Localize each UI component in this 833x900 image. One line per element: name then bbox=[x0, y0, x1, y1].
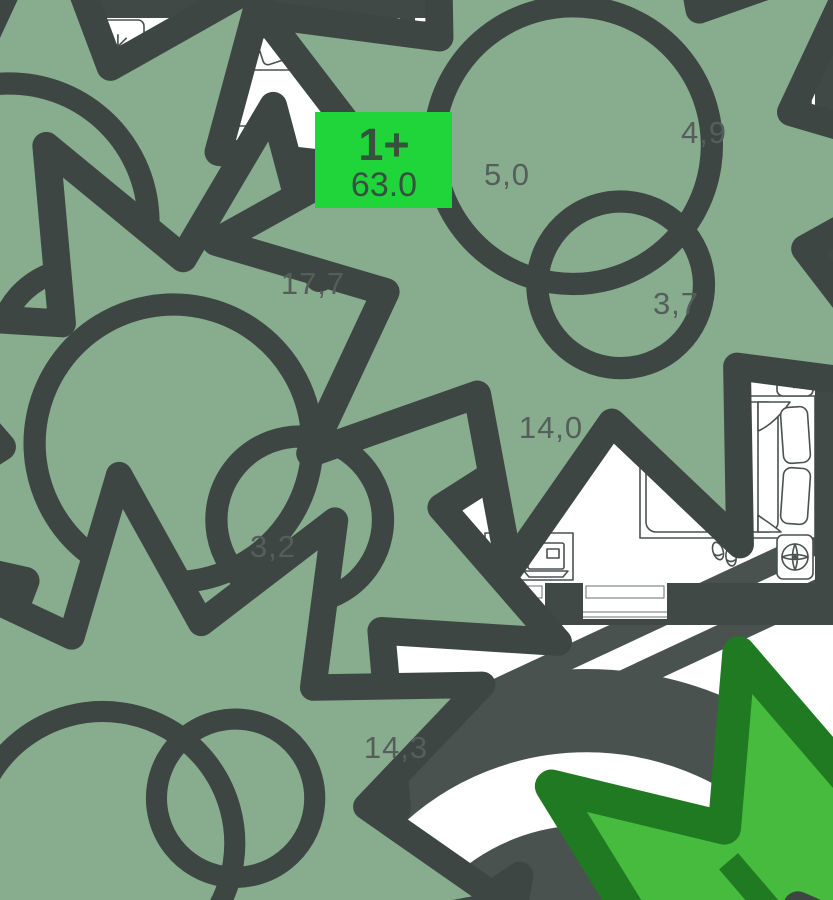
room-label-wardrobe: 3,7 bbox=[653, 286, 699, 321]
room-label-loggia: 3,2 bbox=[250, 529, 296, 564]
room-label-bedroom: 14,0 bbox=[519, 410, 583, 445]
room-label-terrace: 14,3 bbox=[364, 730, 428, 765]
room-label-living: 17,7 bbox=[281, 266, 345, 301]
floor-plan-page: ✳ bbox=[0, 0, 833, 900]
nightstand-bottom bbox=[777, 535, 813, 579]
room-label-bathroom: 4,9 bbox=[681, 115, 727, 150]
badge-area-label: 63.0 bbox=[351, 166, 417, 204]
plan-badge: 1+ 63.0 bbox=[315, 112, 452, 208]
room-label-hallway: 5,0 bbox=[484, 157, 530, 192]
floor-plan: ✳ bbox=[0, 0, 833, 900]
bedroom-window-2 bbox=[583, 583, 667, 619]
badge-type-label: 1+ bbox=[358, 119, 409, 170]
